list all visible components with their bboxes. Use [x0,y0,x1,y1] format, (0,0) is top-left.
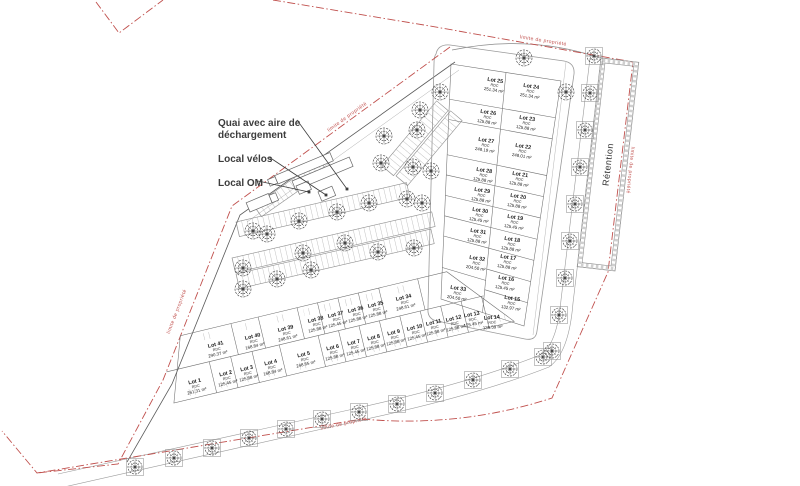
lot-label: Lot 38RDC125.88 m² [305,315,328,334]
lot-area: 125.88 m² [509,180,530,188]
lot-area: 204.50 m² [466,264,487,272]
tree-icon [558,84,574,100]
tree-icon [399,191,415,207]
lot-label: Lot 3RDC125.88 m² [236,364,259,383]
lot-area: 139.59 m² [483,324,504,331]
lot-area: 251.34 m² [484,86,505,94]
lot-area: 168.84 m² [245,341,266,351]
tree-icon [245,223,261,239]
local-om-label: Local OM [218,178,263,189]
tree-icon [361,195,377,211]
lot-label: Lot 33RDC204.50 m² [447,285,469,303]
lot-label: Lot 26RDC125.88 m² [477,109,499,127]
street-tree-icon [427,385,444,402]
tree-icon [414,195,430,211]
limite-label-west: limite de propriété [166,288,189,334]
tree-icon [291,213,307,229]
street-tree-icon [204,440,221,457]
street-tree-icon [502,361,519,378]
street-tree-icon [562,233,579,250]
retention-label: Rétention [601,143,616,187]
street-tree-icon [572,159,589,176]
tree-icon [432,84,448,100]
street-tree-icon [389,396,406,413]
lot-area: 125.88 m² [516,124,537,132]
limite-label-north: limite de propriété [519,34,567,47]
lot-label: Lot 17RDC125.88 m² [497,254,519,272]
lot-area: 125.88 m² [501,245,522,253]
boundary-top-left-v [96,0,163,33]
tree-icon [269,271,285,287]
lot-area: 125.45 m² [504,223,525,231]
lot-label: Lot 10RDC125.45 m² [404,323,427,342]
property-boundary [2,0,633,473]
lot-area: 125.88 m² [497,263,518,271]
street-tree-icon [577,122,594,139]
lot-label: Lot 21RDC125.88 m² [509,171,531,189]
lot-area: 125.88 m² [507,202,528,210]
lot-label: Lot 19RDC125.45 m² [504,214,526,232]
street-tree-icon [586,48,603,65]
tree-icon [423,163,439,179]
tree-icon [259,226,275,242]
lot-area: 125.88 m² [471,196,492,204]
street-tree-icon [557,270,574,287]
lot-area: 248.19 m² [475,146,496,154]
street-tree-icon [127,459,144,476]
lot-label: Lot 23RDC125.88 m² [516,115,538,133]
site-plan-page: limite de propriété limite de propriété … [0,0,800,486]
local-velos-label: Local vélos [218,154,273,165]
lot-label: Lot 39RDC248.61 m² [275,324,298,343]
lot-area: 125.45 m² [495,284,516,292]
lot-label: Lot 1RDC261.31 m² [184,377,207,396]
quai-label-line2: déchargement [218,130,287,141]
street-tree-icon [278,421,295,438]
bottom-housing-strip [159,259,514,403]
lot-label: Lot 24RDC251.34 m² [520,83,542,101]
lot-label: Lot 25RDC251.34 m² [484,77,506,95]
lot-label: Lot 22RDC248.01 m² [512,143,534,161]
lot-area: 132.97 m² [501,304,522,312]
lot-label: Lot 2RDC125.45 m² [215,369,238,388]
lot-label: Lot 37RDC125.45 m² [325,310,348,329]
lot-area: 125.88 m² [477,118,498,126]
tree-icon [516,50,532,66]
lot-area: 125.45 m² [328,319,349,329]
lot-label: Lot 27RDC248.19 m² [475,137,497,155]
street-tree-icon [166,450,183,467]
trees-layer [127,48,603,476]
tree-icon [406,240,422,256]
lot-label: Lot 7RDC125.45 m² [343,338,366,357]
lot-label: Lot 11RDC125.88 m² [423,318,446,337]
street-tree-icon [567,196,584,213]
lot-area: 248.01 m² [512,152,533,160]
tree-icon [376,128,392,144]
lot-area: 204.50 m² [447,294,468,302]
tree-icon [329,204,345,220]
lot-label: Lot 20RDC125.88 m² [507,193,529,211]
quai-label-line1: Quai avec aire de [218,118,301,129]
lot-area: 125.88 m² [467,237,488,245]
lot-area: 125.88 m² [308,324,329,334]
lot-label: Lot 16RDC125.45 m² [495,275,517,293]
tree-icon [235,281,251,297]
street-tree-icon [551,307,568,324]
lot-area: 248.61 m² [396,302,417,312]
boundary-north-east-south [2,0,633,473]
lot-label: Lot 30RDC125.45 m² [469,207,491,225]
lot-label: Lot 4RDC168.84 m² [260,358,283,377]
site-plan-canvas: limite de propriété limite de propriété … [0,0,800,486]
lot-label: Lot 15RDC132.97 m² [501,295,523,313]
lot-label: Lot 31RDC125.88 m² [467,228,489,246]
lot-area: 251.34 m² [520,92,541,100]
lot-label: Lot 18RDC125.88 m² [501,236,523,254]
lot-area: 290.37 m² [208,349,229,359]
lot-label: Lot 29RDC125.88 m² [471,187,493,205]
tree-icon [303,262,319,278]
lot-label: Lot 34RDC248.61 m² [393,293,416,312]
lot-label: Lot 5RDC248.65 m² [293,350,316,369]
lot-label: Lot 41RDC290.37 m² [205,340,228,359]
lot-label: Lot 32RDC204.50 m² [466,255,488,273]
street-tree-icon [465,372,482,389]
lot-label: Lot 28RDC125.88 m² [473,167,495,185]
